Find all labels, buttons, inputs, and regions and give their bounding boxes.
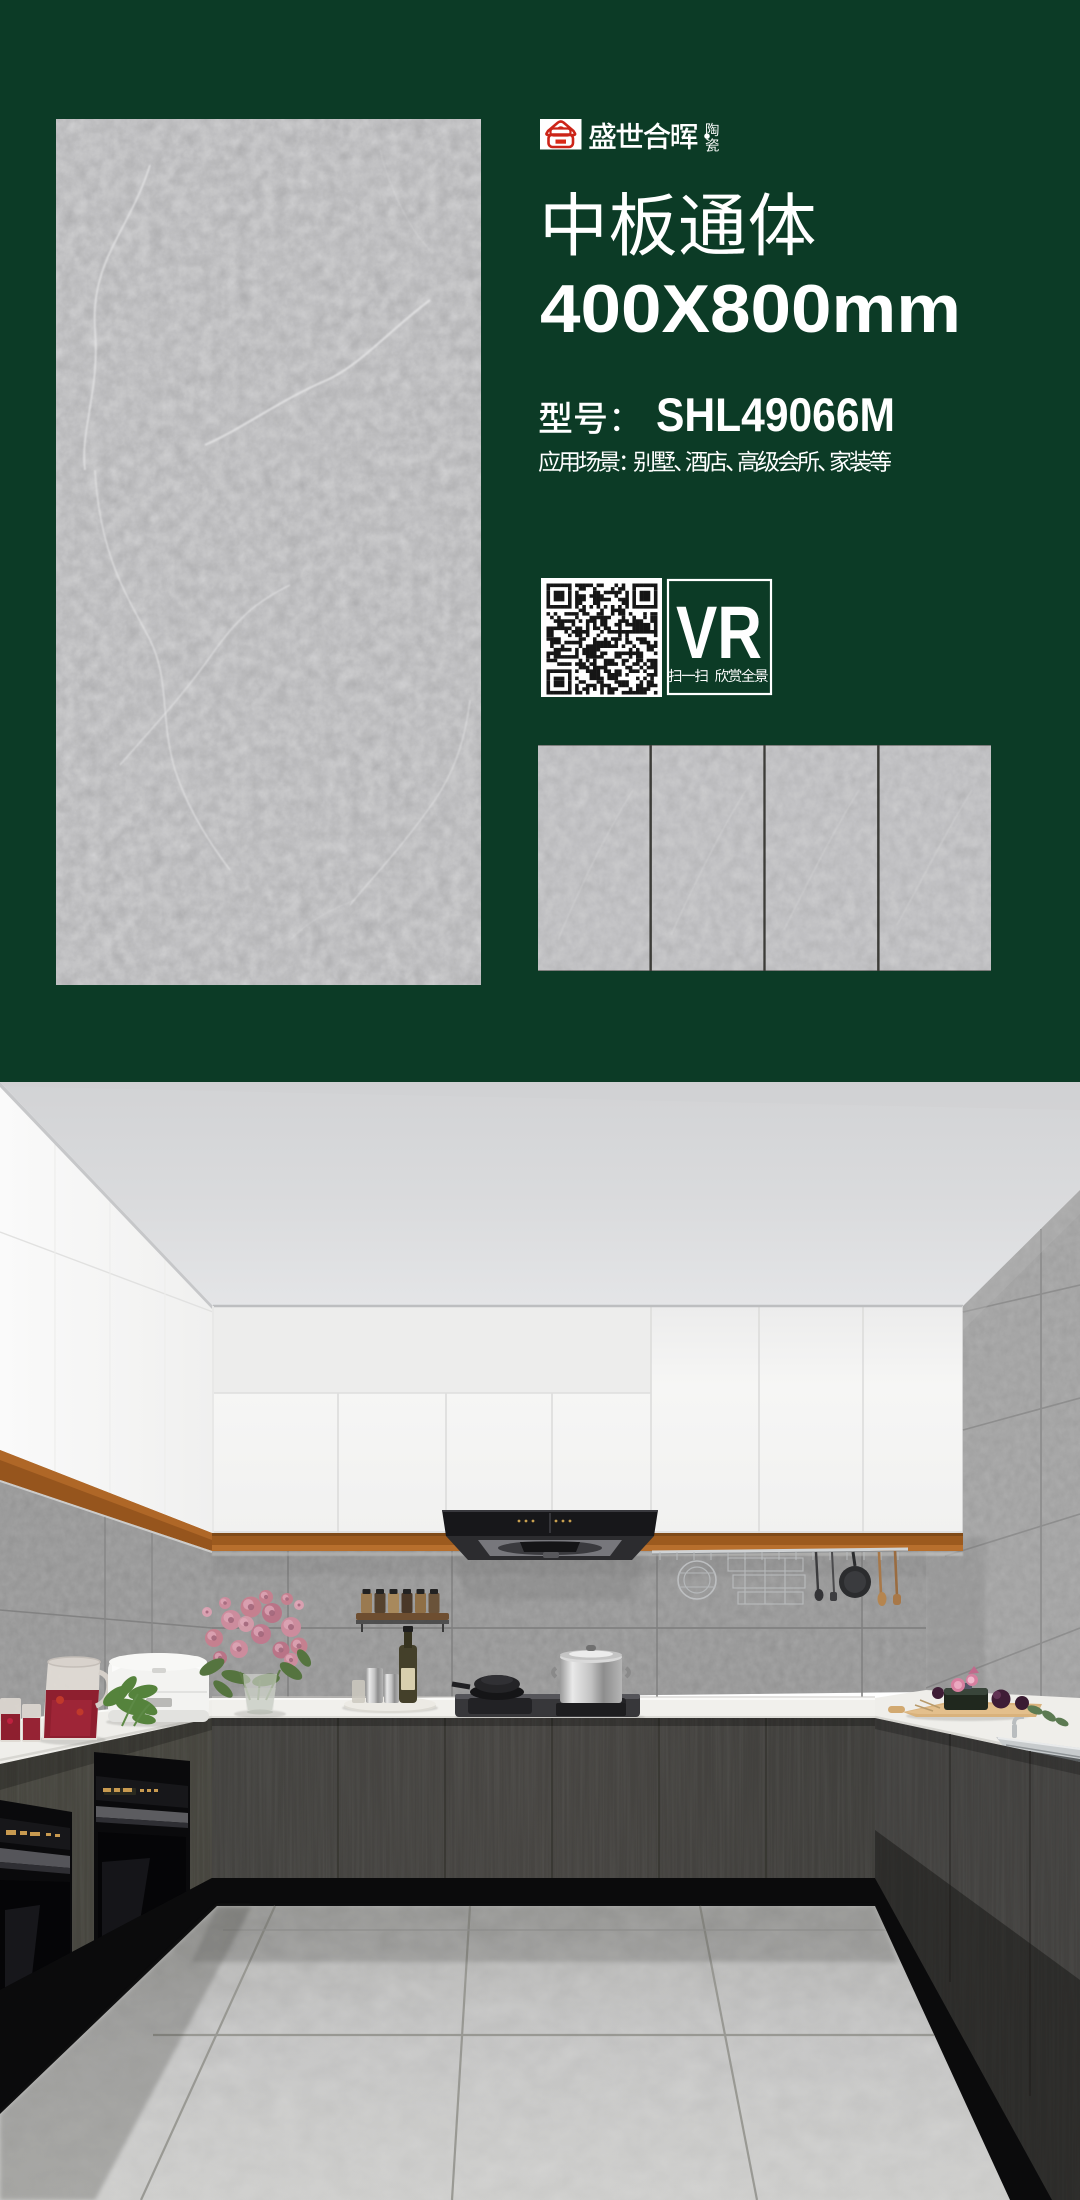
svg-text:VR: VR [676,591,762,674]
svg-text:400X800mm: 400X800mm [540,272,961,347]
svg-text:SHL49066M: SHL49066M [656,388,895,441]
